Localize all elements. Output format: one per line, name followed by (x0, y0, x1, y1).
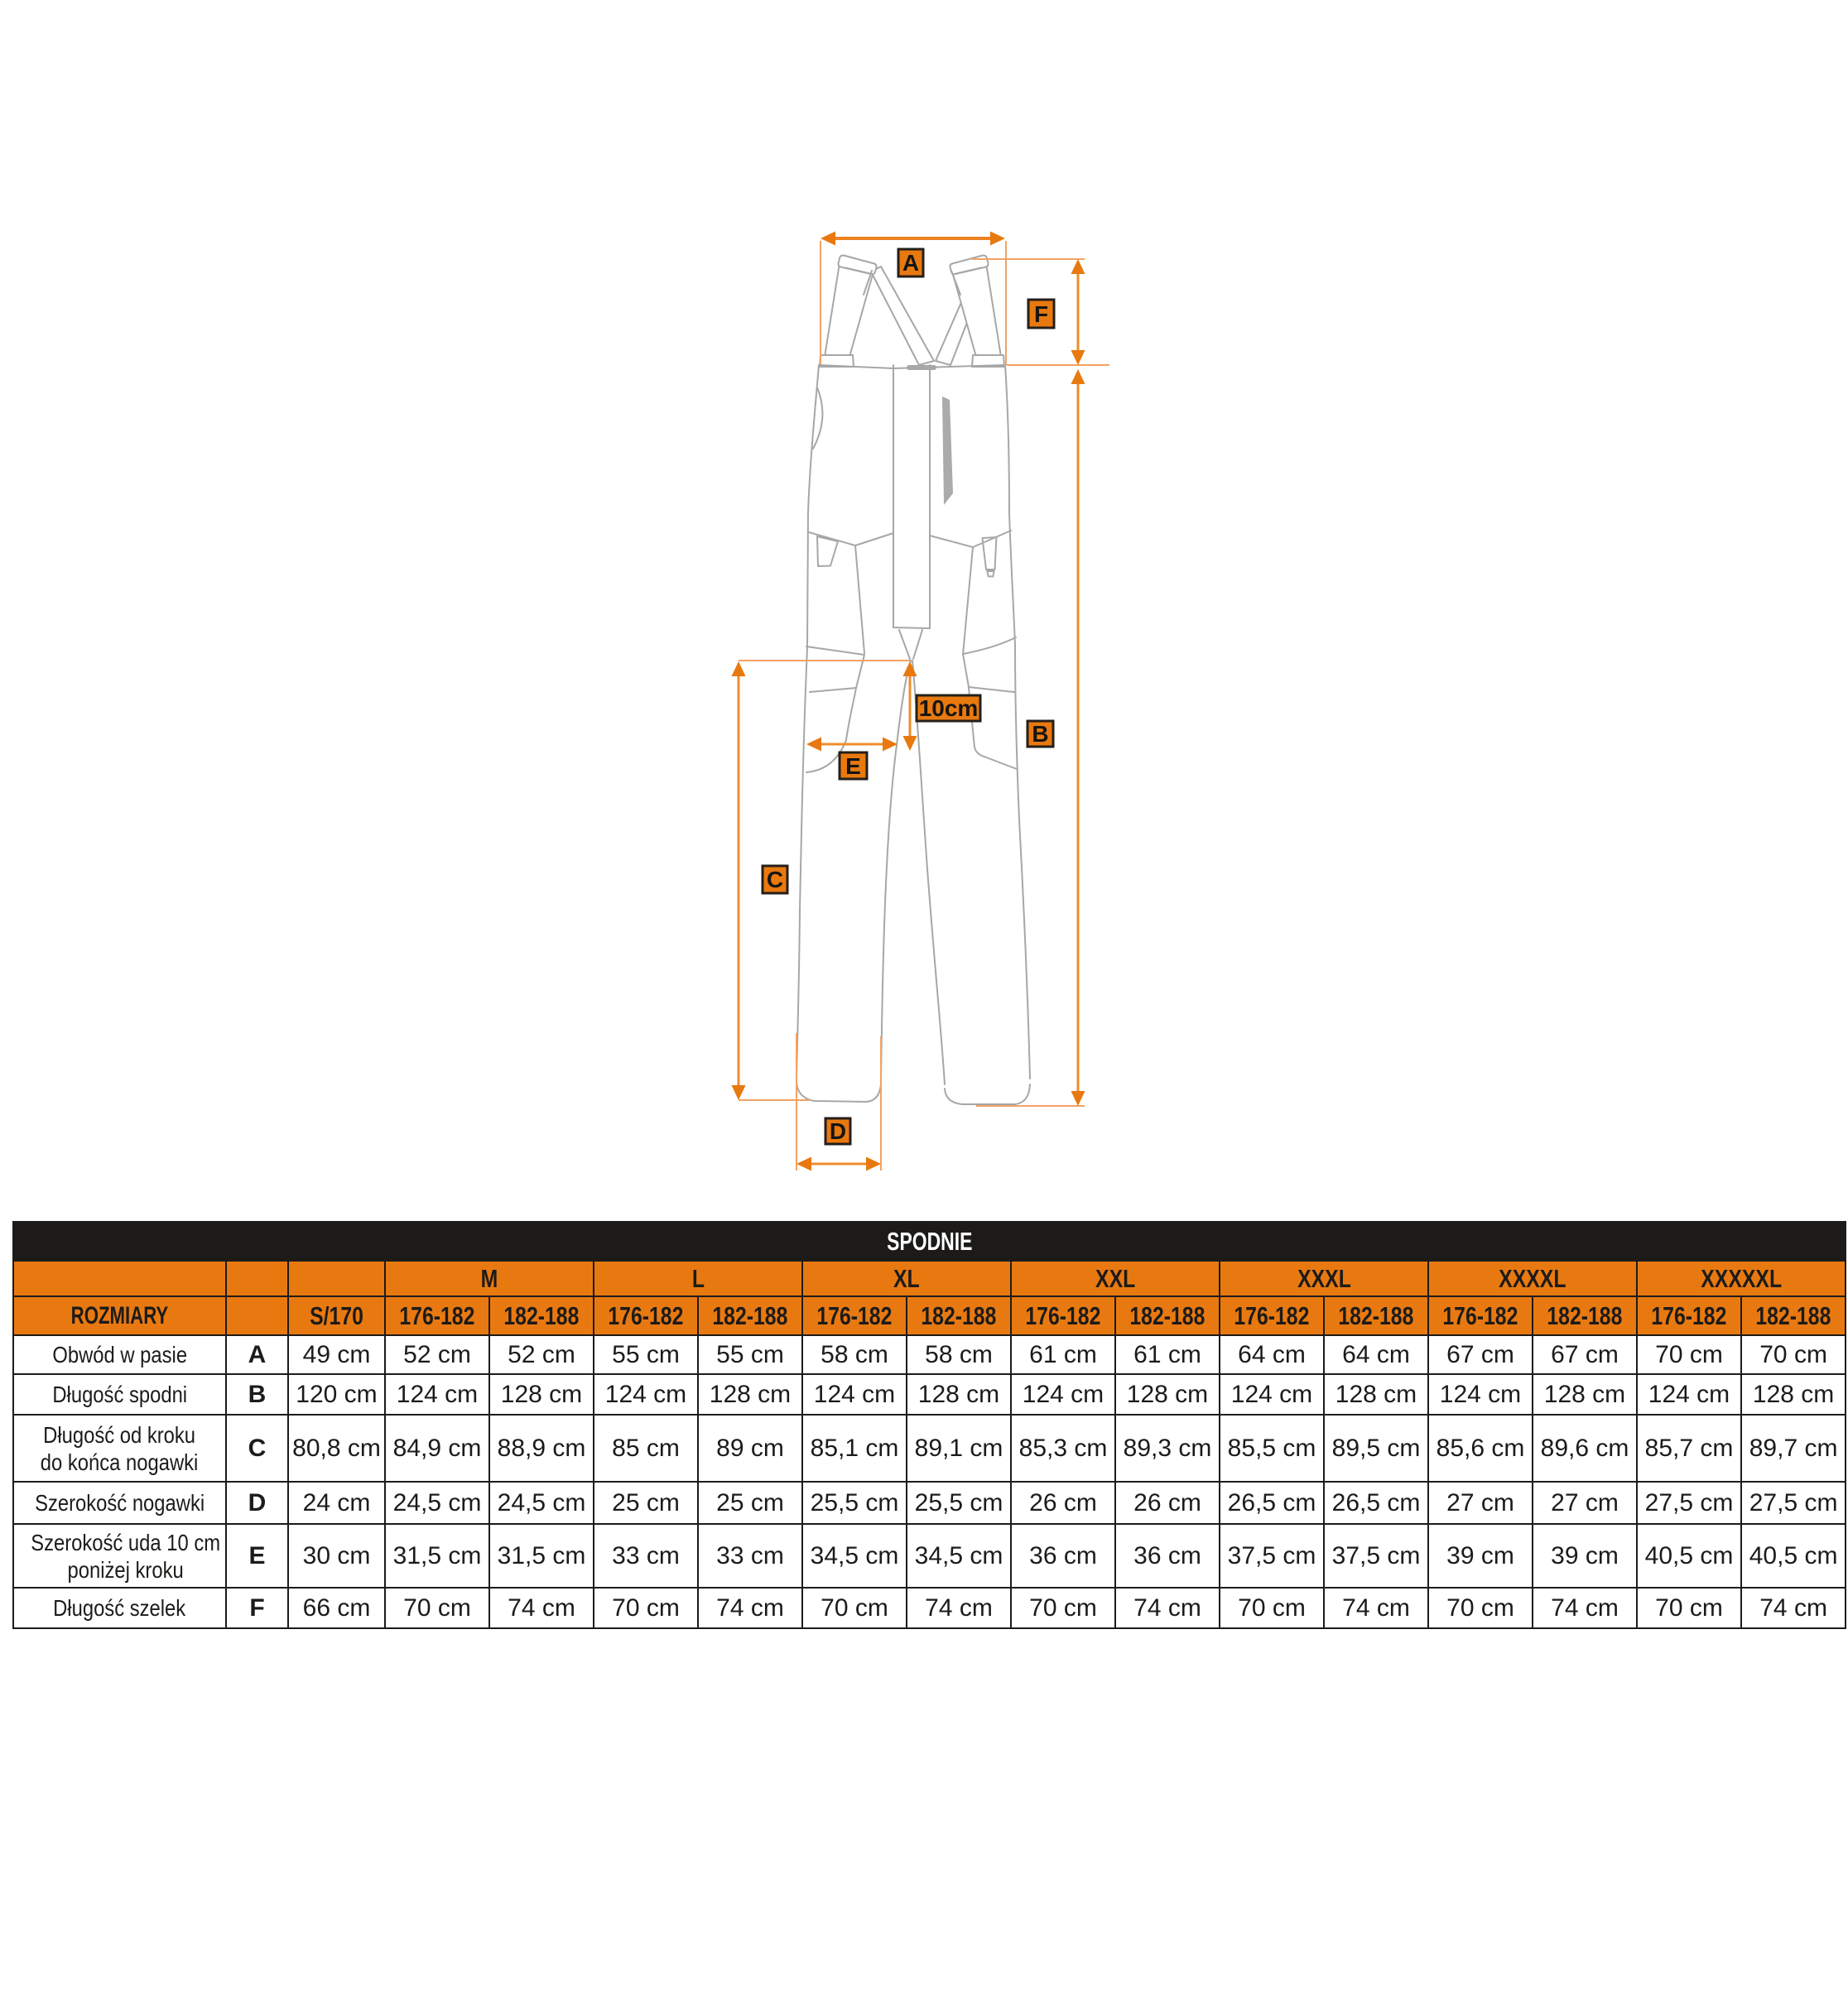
svg-text:B: B (1032, 721, 1048, 747)
svg-text:F: F (1034, 301, 1048, 327)
svg-text:E: E (845, 753, 861, 779)
svg-text:D: D (830, 1118, 846, 1144)
svg-text:A: A (902, 250, 919, 276)
svg-text:10cm: 10cm (919, 695, 979, 721)
svg-text:C: C (767, 867, 783, 892)
